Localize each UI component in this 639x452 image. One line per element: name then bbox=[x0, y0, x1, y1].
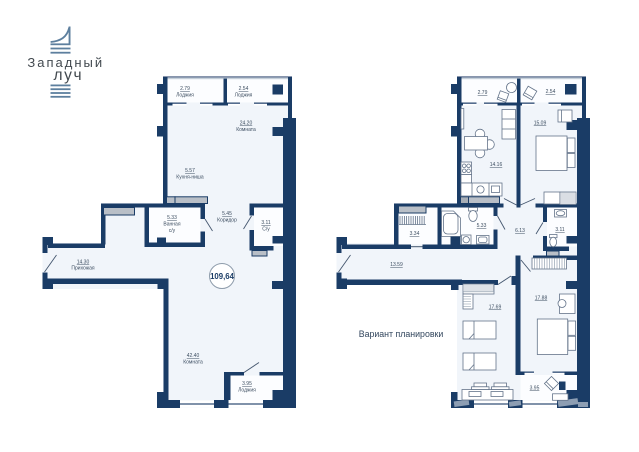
svg-text:2.79: 2.79 bbox=[478, 90, 488, 96]
svg-text:5.33: 5.33 bbox=[477, 223, 487, 229]
svg-text:3.95: 3.95 bbox=[530, 386, 540, 392]
svg-text:15.09: 15.09 bbox=[534, 121, 547, 127]
svg-text:3.95: 3.95 bbox=[242, 381, 252, 387]
svg-text:с/у: с/у bbox=[169, 228, 176, 234]
svg-text:Лоджия: Лоджия bbox=[238, 388, 256, 394]
svg-text:Ванная: Ванная bbox=[163, 222, 180, 228]
svg-text:Кухня-ниша: Кухня-ниша bbox=[176, 175, 204, 181]
svg-text:6.13: 6.13 bbox=[515, 228, 525, 234]
svg-text:Комната: Комната bbox=[183, 360, 203, 366]
svg-text:Лоджия: Лоджия bbox=[176, 93, 194, 99]
svg-text:3.34: 3.34 bbox=[410, 231, 420, 237]
svg-text:5.57: 5.57 bbox=[185, 168, 195, 174]
svg-text:С/у: С/у bbox=[262, 227, 270, 233]
svg-text:5.33: 5.33 bbox=[167, 215, 177, 221]
svg-text:5.45: 5.45 bbox=[222, 211, 232, 217]
svg-text:3.11: 3.11 bbox=[555, 227, 565, 233]
svg-text:14.16: 14.16 bbox=[490, 162, 503, 168]
svg-text:Коридор: Коридор bbox=[217, 218, 237, 224]
svg-text:2.79: 2.79 bbox=[180, 86, 190, 92]
svg-text:Прихожая: Прихожая bbox=[71, 266, 94, 272]
svg-text:17.88: 17.88 bbox=[535, 296, 548, 302]
svg-text:луч: луч bbox=[53, 67, 83, 84]
svg-text:2.54: 2.54 bbox=[239, 86, 249, 92]
svg-text:13.59: 13.59 bbox=[390, 262, 403, 268]
svg-text:Лоджия: Лоджия bbox=[235, 93, 253, 99]
svg-text:17.69: 17.69 bbox=[489, 305, 502, 311]
svg-text:42.40: 42.40 bbox=[187, 353, 200, 359]
svg-text:3.11: 3.11 bbox=[261, 220, 271, 226]
svg-text:24.20: 24.20 bbox=[240, 121, 253, 127]
svg-text:109,64: 109,64 bbox=[210, 272, 235, 281]
svg-text:2.54: 2.54 bbox=[546, 89, 556, 95]
svg-text:Вариант планировки: Вариант планировки bbox=[359, 329, 444, 339]
svg-text:Комната: Комната bbox=[236, 127, 256, 133]
